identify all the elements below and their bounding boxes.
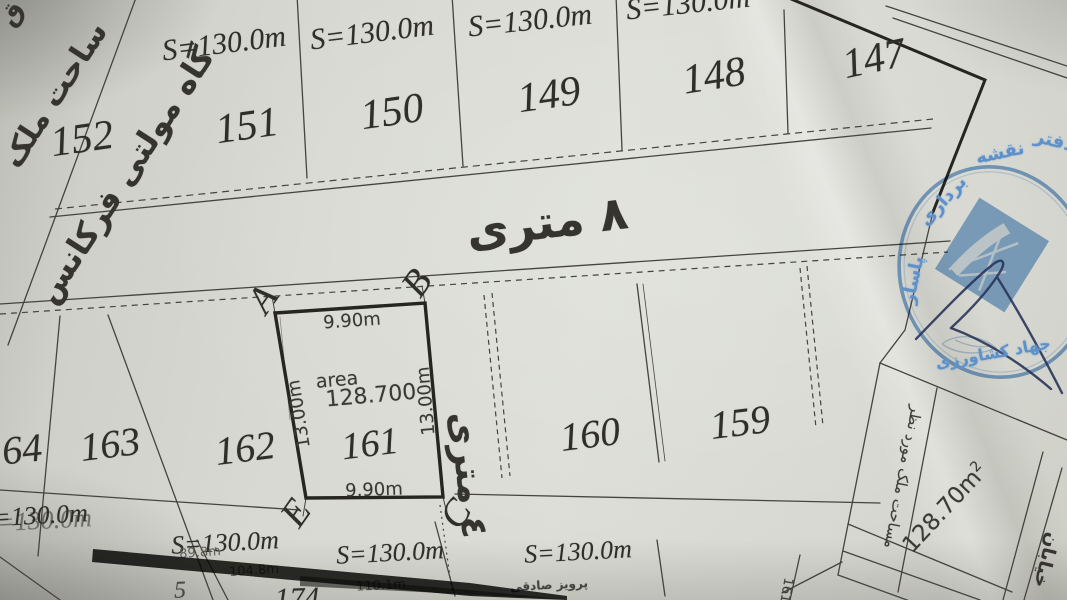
front-line-right: [455, 494, 880, 503]
plot-number-161: 161: [339, 419, 401, 470]
plot159-right-dashed-2: [807, 266, 823, 426]
survey-plan-photo: ق ساحت ملک گاه مولتی فرکانس S=130.0m S=1…: [0, 0, 1067, 600]
plot-number-149: 149: [514, 67, 583, 123]
plot-number-151: 151: [212, 98, 281, 154]
plot-number-159: 159: [707, 395, 772, 449]
frontage-label-3: S=130.0m: [335, 535, 444, 571]
plot-number-160: 160: [557, 407, 622, 461]
lower-sep-3: [657, 540, 665, 596]
sep-149-148: [616, 0, 622, 150]
plot-number-148: 148: [679, 47, 749, 104]
plot-number-174-partial: 174: [274, 581, 320, 600]
street-line-topright-1: [886, 6, 1067, 66]
plot-number-162: 162: [212, 421, 277, 475]
plot-number-152: 152: [47, 111, 116, 167]
sep-160-159-double: [643, 284, 665, 461]
table-left-edge: [838, 363, 880, 575]
road-bottom-dashed: [0, 252, 948, 314]
sep-148-147: [784, 10, 788, 133]
lower-corner-line: [0, 557, 60, 600]
frontage-length-1: 89.8m: [179, 544, 222, 562]
frontage-label-4: S=130.0m: [523, 534, 632, 570]
plot160-left-dashed-1: [484, 295, 502, 478]
plot161-top-length: 9.90m: [323, 309, 382, 334]
sep-150-149: [452, 0, 463, 166]
plot-number-150: 150: [357, 84, 426, 140]
plot159-right-dashed-1: [800, 268, 816, 428]
sep-151-150: [297, 0, 307, 178]
plot161-bottom-length: 9.90m: [345, 479, 403, 502]
plot-number-164-partial: 64: [0, 424, 44, 475]
plot160-left-dashed-2: [492, 293, 510, 476]
sep-160-159: [637, 284, 659, 462]
plot-number-partial-5: 5: [174, 577, 187, 600]
road-top-dashed: [55, 119, 933, 209]
frontage-length-3: 110.1m: [356, 577, 407, 595]
street-line-topright-2: [893, 18, 1067, 78]
plot-number-163: 163: [77, 417, 142, 471]
frontage-label-1-doubleprint: S=130.0m: [0, 503, 93, 539]
table-row-line-2: [843, 551, 980, 600]
table-bottom-edge: [838, 575, 1045, 600]
